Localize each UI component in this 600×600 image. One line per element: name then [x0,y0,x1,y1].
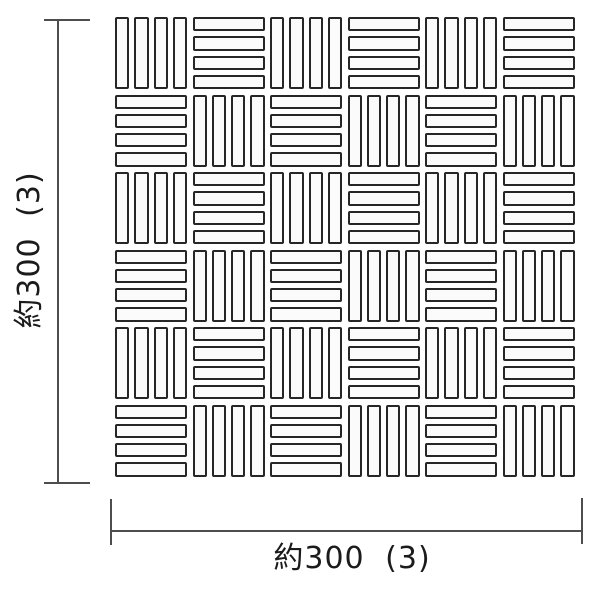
tile-bar [560,405,574,477]
tile-cell-horizontal [503,327,575,399]
tile-bar [154,17,168,89]
tile-bar [503,385,575,399]
tile-bar [348,385,420,399]
tile-bar [270,462,342,476]
tile-bar [522,95,536,167]
tile-bar [270,327,284,399]
tile-bar [425,288,497,302]
tile-cell-vertical [425,172,497,244]
tile-bar [348,191,420,205]
tile-bar [270,152,342,166]
tile-bar [425,462,497,476]
tile-bar [270,307,342,321]
tile-cell-vertical [503,250,575,322]
tile-bar [270,17,284,89]
tile-bar [503,172,575,186]
tile-cell-vertical [503,405,575,477]
tile-bar [193,366,265,380]
tile-bar [134,172,148,244]
tile-bar [425,269,497,283]
tile-cell-vertical [270,172,342,244]
tile-bar [193,95,207,167]
tile-bar [483,172,497,244]
tile-bar [503,95,517,167]
tile-cell-vertical [115,172,187,244]
tile-bar [348,56,420,70]
tile-cell-vertical [270,327,342,399]
tile-cell-horizontal [425,250,497,322]
tile-bar [250,405,264,477]
tile-bar [270,405,342,419]
bottom-dimension-tick-right [581,498,583,544]
tile-bar [173,327,187,399]
tile-bar [560,250,574,322]
tile-bar [270,250,342,264]
tile-bar [115,443,187,457]
tile-cell-vertical [348,250,420,322]
tile-bar [483,327,497,399]
tile-bar [405,405,419,477]
tile-bar [386,95,400,167]
tile-bar [193,346,265,360]
tile-bar [503,250,517,322]
tile-bar [348,211,420,225]
tile-bar [367,95,381,167]
tile-bar [425,327,439,399]
tile-bar [193,250,207,322]
tile-bar [115,152,187,166]
tile-bar [386,250,400,322]
tile-bar [348,230,420,244]
tile-bar [134,327,148,399]
tile-bar [115,462,187,476]
tile-cell-horizontal [270,250,342,322]
tile-bar [348,17,420,31]
tile-bar [173,17,187,89]
tile-bar [367,405,381,477]
tile-cell-horizontal [425,95,497,167]
tile-bar [270,443,342,457]
tile-cell-horizontal [270,95,342,167]
tile-bar [231,405,245,477]
tile-bar [503,36,575,50]
tile-cell-horizontal [503,17,575,89]
tile-bar [425,114,497,128]
tile-bar [193,211,265,225]
tile-bar [348,250,362,322]
tile-bar [270,288,342,302]
tile-bar [464,327,478,399]
bottom-dimension-tick-left [110,499,112,545]
left-dimension-line [57,19,59,484]
tile-cell-vertical [270,17,342,89]
tile-bar [348,172,420,186]
tile-bar [503,211,575,225]
tile-bar [503,191,575,205]
tile-cell-horizontal [115,405,187,477]
tile-bar [115,424,187,438]
tile-cell-vertical [193,95,265,167]
tile-bar [270,133,342,147]
tile-bar [270,269,342,283]
tile-bar [425,443,497,457]
tile-cell-vertical [425,17,497,89]
tile-bar [115,269,187,283]
tile-bar [134,17,148,89]
tile-bar [270,114,342,128]
tile-bar [503,346,575,360]
tile-bar [541,250,555,322]
tile-bar [425,250,497,264]
tile-bar [115,307,187,321]
tile-bar [193,56,265,70]
tile-bar [425,405,497,419]
tile-bar [212,405,226,477]
tile-bar [425,133,497,147]
tile-bar [541,95,555,167]
tile-bar [212,250,226,322]
tile-bar [115,17,129,89]
tile-bar [193,385,265,399]
tile-bar [309,172,323,244]
tile-bar [309,17,323,89]
tile-bar [522,405,536,477]
tile-bar [193,36,265,50]
left-dimension-tick-bottom [44,482,90,484]
tile-bar [193,405,207,477]
tile-bar [115,405,187,419]
tile-bar [193,191,265,205]
tile-bar [270,424,342,438]
tile-bar [115,114,187,128]
tile-bar [193,17,265,31]
tile-bar [367,250,381,322]
tile-bar [154,172,168,244]
tile-bar [503,327,575,341]
tile-bar [250,95,264,167]
tile-bar [154,327,168,399]
tile-bar [328,327,342,399]
tile-bar [503,75,575,89]
tile-cell-vertical [115,17,187,89]
tile-bar [522,250,536,322]
tile-cell-horizontal [193,172,265,244]
tile-cell-vertical [348,95,420,167]
tile-bar [328,172,342,244]
tile-bar [289,172,303,244]
tile-bar [270,172,284,244]
tile-bar [289,327,303,399]
tile-cell-vertical [193,405,265,477]
tile-bar [193,172,265,186]
tile-cell-vertical [348,405,420,477]
tile-sheet-diagram: 約300 (3) 約300 (3) [0,0,600,600]
tile-bar [425,152,497,166]
tile-bar [212,95,226,167]
tile-bar [115,133,187,147]
tile-bar [503,405,517,477]
tile-bar [193,75,265,89]
tile-bar [560,95,574,167]
tile-bar [115,172,129,244]
tile-cell-vertical [193,250,265,322]
tile-bar [309,327,323,399]
tile-cell-horizontal [193,17,265,89]
tile-cell-vertical [503,95,575,167]
tile-cell-horizontal [503,172,575,244]
tile-bar [503,230,575,244]
tile-bar [425,424,497,438]
tile-bar [348,346,420,360]
tile-bar [464,17,478,89]
tile-cell-horizontal [348,172,420,244]
tile-cell-horizontal [115,95,187,167]
tile-bar [348,95,362,167]
tile-bar [348,75,420,89]
bottom-dimension-line [111,530,582,532]
tile-bar [425,95,497,109]
tile-bar [348,36,420,50]
tile-bar [231,95,245,167]
tile-bar [444,327,458,399]
left-dimension-label: 約300 (3) [15,171,45,328]
tile-bar [348,366,420,380]
tile-bar [464,172,478,244]
tile-cell-vertical [115,327,187,399]
tile-bar [328,17,342,89]
tile-bar [503,366,575,380]
tile-bar [348,405,362,477]
tile-cell-horizontal [348,17,420,89]
tile-cell-horizontal [348,327,420,399]
tile-bar [444,17,458,89]
tile-bar [348,327,420,341]
tile-cell-horizontal [270,405,342,477]
tile-bar [193,327,265,341]
tile-bar [250,250,264,322]
tile-bar [231,250,245,322]
left-dimension-tick-top [44,19,90,21]
tile-bar [115,95,187,109]
tile-bar [270,95,342,109]
tile-bar [289,17,303,89]
tile-cell-horizontal [115,250,187,322]
tile-cell-vertical [425,327,497,399]
mosaic-grid [115,17,575,477]
bottom-dimension-label: 約300 (3) [273,544,430,574]
tile-bar [115,327,129,399]
tile-bar [425,17,439,89]
tile-bar [173,172,187,244]
tile-bar [541,405,555,477]
tile-bar [405,95,419,167]
tile-bar [386,405,400,477]
tile-cell-horizontal [193,327,265,399]
tile-bar [425,307,497,321]
tile-bar [115,288,187,302]
tile-bar [444,172,458,244]
tile-bar [503,56,575,70]
tile-bar [503,17,575,31]
tile-bar [425,172,439,244]
tile-bar [483,17,497,89]
tile-bar [193,230,265,244]
tile-bar [115,250,187,264]
tile-bar [405,250,419,322]
tile-cell-horizontal [425,405,497,477]
